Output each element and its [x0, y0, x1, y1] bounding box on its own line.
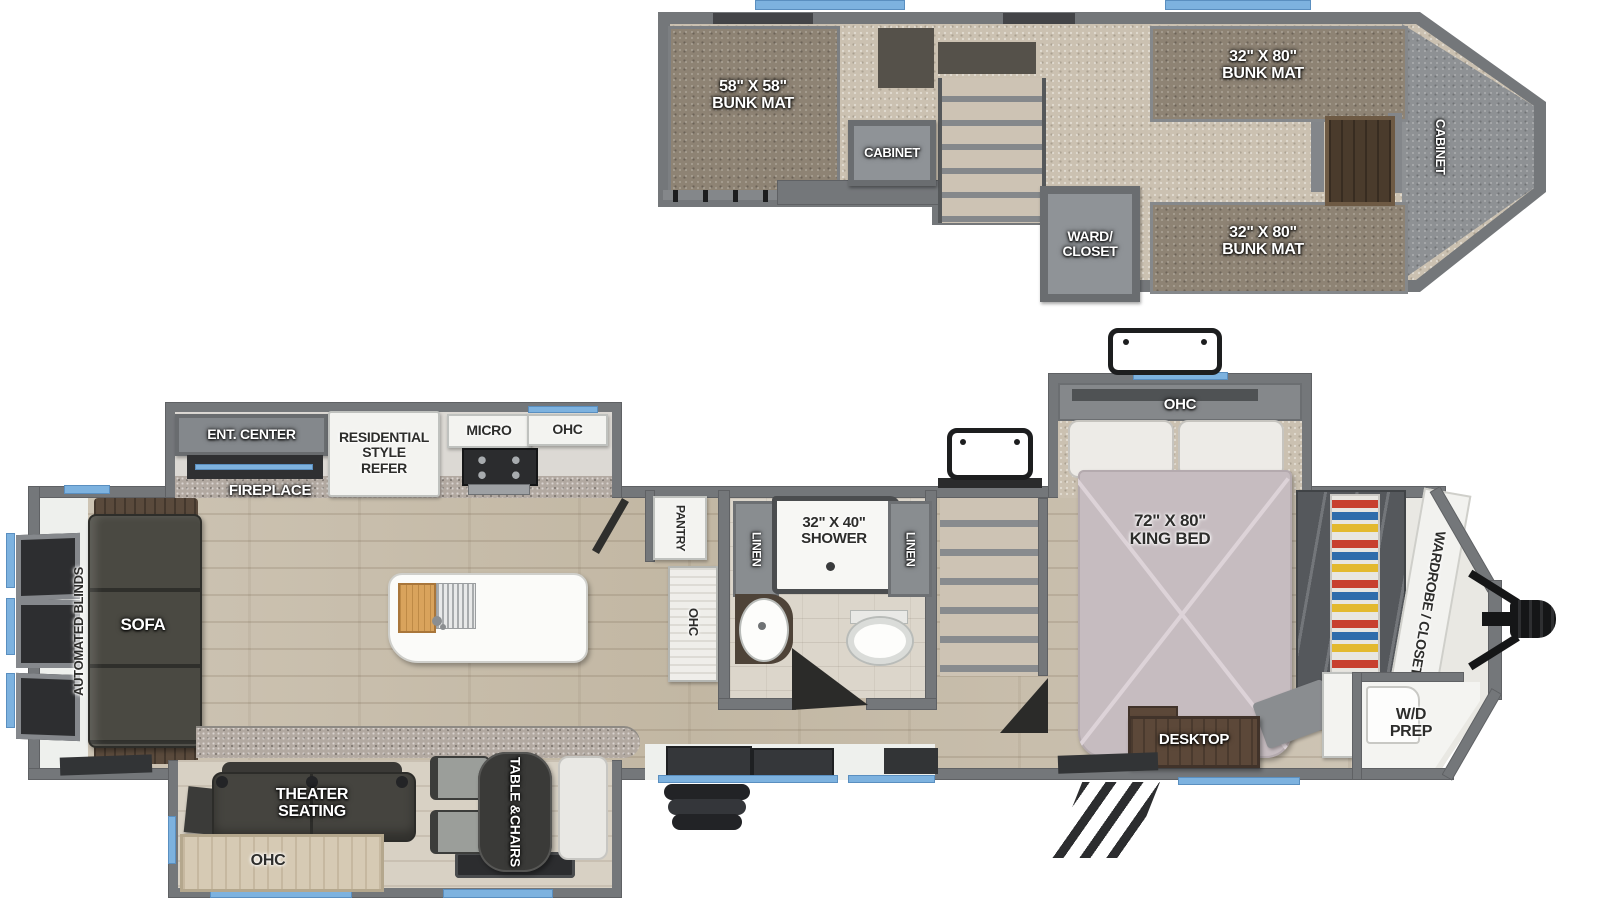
entry-steps	[672, 814, 742, 830]
refer-label: RESIDENTIAL STYLE REFER	[328, 414, 440, 492]
bedroom-entry-steps	[1052, 782, 1160, 858]
shower-drain	[826, 562, 835, 571]
kitchen-window-accent	[528, 406, 598, 413]
bath-wall-bottom-right	[866, 698, 937, 710]
wd-wall-left	[1352, 672, 1362, 780]
stairs-right-wall	[1038, 498, 1048, 676]
entry-window-accent	[658, 775, 838, 783]
entry-door-panel	[752, 748, 834, 778]
upper-cabinet-label: CABINET	[848, 120, 936, 186]
entry-steps	[668, 799, 746, 815]
ent-center-label: ENT. CENTER	[175, 414, 328, 456]
tv-icon-bedroom	[1108, 328, 1222, 375]
railing-post	[703, 190, 708, 202]
lower-counter	[196, 726, 640, 758]
railing-post	[733, 190, 738, 202]
rear-window-accent	[6, 598, 15, 655]
bunk-mat-bottom-label: 32" X 80" BUNK MAT	[1188, 218, 1338, 264]
railing-post	[673, 190, 678, 202]
bottom-rear-window	[60, 754, 153, 775]
island-ohc-label: OHC	[668, 586, 718, 658]
bunk-mat-top-label: 32" X 80" BUNK MAT	[1188, 42, 1338, 88]
cutting-board	[398, 583, 436, 633]
theater-seating-label: THEATER SEATING	[242, 780, 382, 826]
tv-mount-dot	[960, 439, 966, 445]
slide-topper	[713, 13, 813, 24]
bath-wall-bottom-left	[718, 698, 796, 710]
garage-window-accent	[443, 889, 553, 898]
entry-window-accent	[848, 775, 935, 783]
garage-window-accent	[168, 816, 176, 864]
bed-ohc-label: OHC	[1140, 392, 1220, 418]
bath-sink	[739, 598, 789, 662]
stair-opening-shadow	[878, 28, 934, 88]
tv-icon-stairs	[947, 428, 1033, 480]
bedroom-stairs	[940, 498, 1038, 676]
bunk-side-panel	[1311, 122, 1324, 192]
rv-floorplan: CABINET WARD/ CLOSET 58" X 58" BUNK MAT …	[0, 0, 1600, 902]
bedroom-door-window	[1058, 752, 1159, 773]
bath-faucet	[758, 622, 766, 630]
upper-window-accent	[1165, 0, 1311, 10]
tv-mount-dot	[1014, 439, 1020, 445]
rear-window-accent	[6, 533, 15, 588]
upper-window-accent	[755, 0, 905, 10]
door-side-window	[884, 748, 938, 774]
bunk-table	[1325, 116, 1395, 206]
desk-cabinet	[1322, 672, 1356, 758]
wd-wall-top	[1352, 672, 1464, 682]
entry-door-panel	[666, 746, 752, 778]
rear-window-accent	[6, 673, 15, 728]
toilet	[846, 616, 914, 666]
bunk-mat-58-label: 58" X 58" BUNK MAT	[683, 70, 823, 120]
bath-wall-left	[718, 490, 730, 710]
micro-label: MICRO	[447, 414, 531, 448]
top-rear-window-accent	[64, 485, 110, 494]
sofa-label: SOFA	[98, 605, 188, 645]
hitch-pin-box	[1510, 600, 1556, 638]
range-cooktop	[462, 448, 538, 486]
loft-stairs	[938, 78, 1046, 223]
king-bed-label: 72" X 80" KING BED	[1100, 505, 1240, 555]
railing-post	[763, 190, 768, 202]
automated-blinds-label: AUTOMATED BLINDS	[68, 500, 90, 762]
dinette-bench	[558, 756, 608, 860]
slide-topper	[1003, 13, 1075, 24]
theater-cupholder	[216, 776, 228, 788]
tv-mount-dot	[1201, 339, 1207, 345]
ward-closet-label: WARD/ CLOSET	[1040, 186, 1140, 302]
linen-right-label: LINEN	[888, 501, 932, 597]
island-sink	[436, 583, 476, 629]
wd-prep-label: W/D PREP	[1368, 698, 1454, 748]
range-vent	[468, 484, 530, 495]
upper-deck-plan: CABINET WARD/ CLOSET 58" X 58" BUNK MAT …	[648, 0, 1558, 310]
garage-ohc-label: OHC	[228, 846, 308, 876]
bedroom-window-accent	[1178, 777, 1300, 785]
fireplace-tv-screen	[195, 464, 313, 470]
tv-mount-dot	[1123, 339, 1129, 345]
shower-label: 32" X 40" SHOWER	[772, 500, 896, 562]
front-cabinet-label: CABINET	[1426, 92, 1454, 202]
entry-steps	[664, 784, 750, 800]
stair-opening-shadow	[938, 42, 1036, 74]
fireplace-label: FIREPLACE	[200, 478, 340, 504]
pantry-label: PANTRY	[653, 496, 707, 560]
theater-cupholder	[396, 776, 408, 788]
table-chairs-label: TABLE & CHAIRS	[480, 762, 550, 862]
kitchen-ohc-label: OHC	[527, 414, 608, 446]
island-faucet	[432, 616, 442, 626]
cap-wall-front	[1488, 580, 1502, 700]
